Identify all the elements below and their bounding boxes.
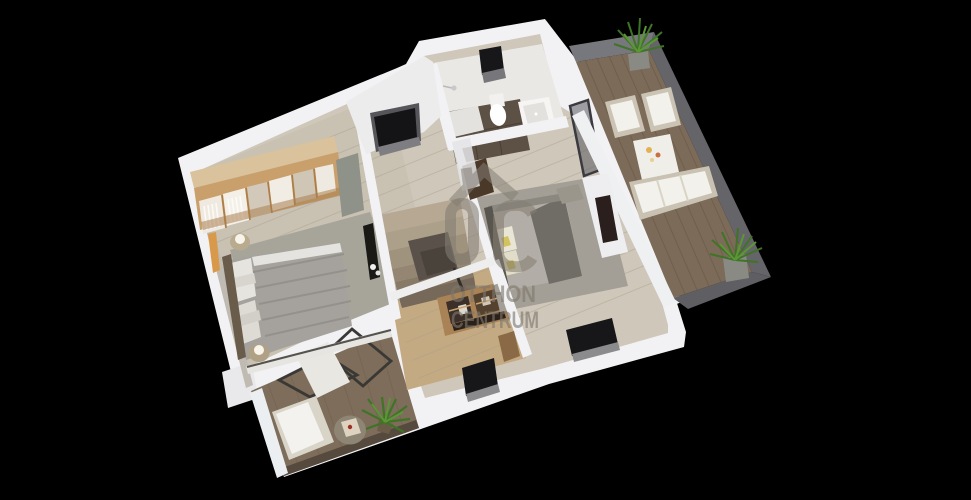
svg-text:CENTRUM: CENTRUM <box>451 307 539 334</box>
svg-text:OTTHON: OTTHON <box>450 281 536 308</box>
